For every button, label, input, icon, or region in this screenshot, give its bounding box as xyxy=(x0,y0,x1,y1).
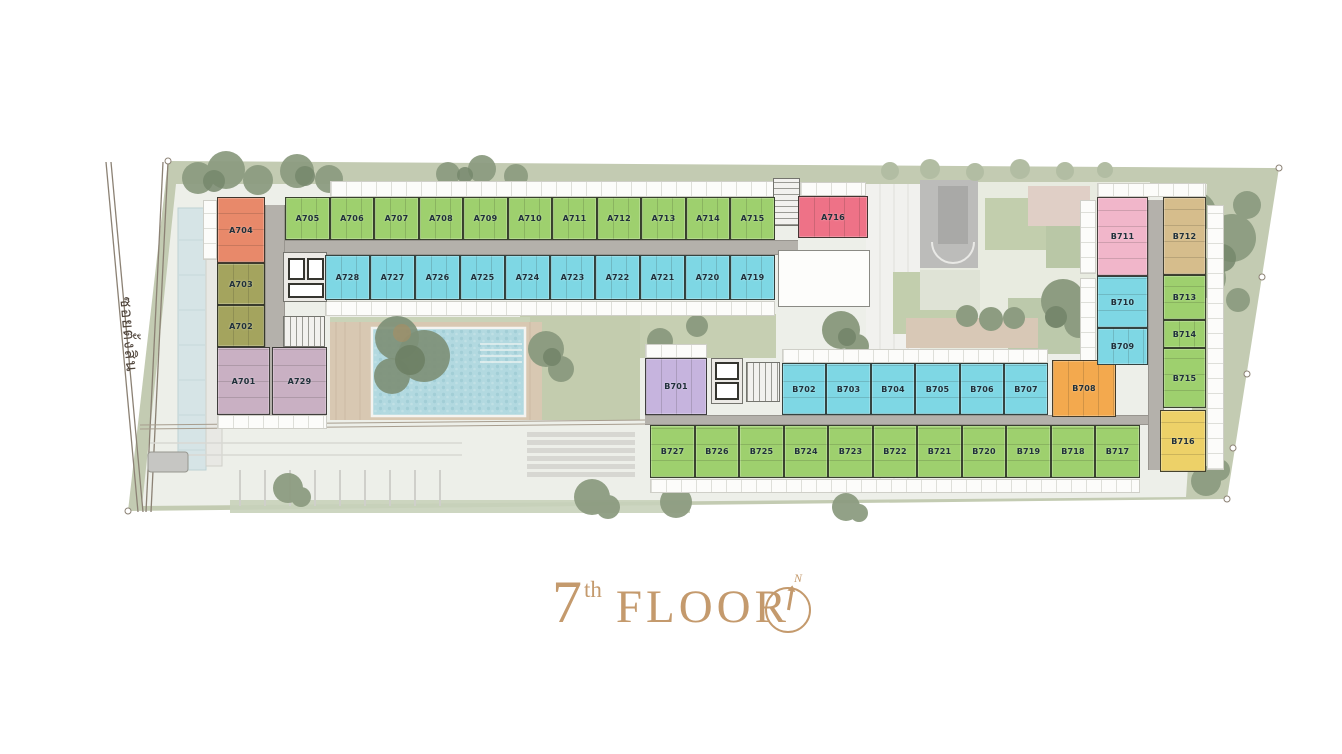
unit-b712[interactable]: B712 xyxy=(1163,197,1206,275)
unit-label: B721 xyxy=(928,447,952,456)
unit-b727[interactable]: B727 xyxy=(650,425,695,478)
building-b: B701B702B703B704B705B706B707B708B711B712… xyxy=(0,0,1342,754)
unit-label: B710 xyxy=(1111,298,1135,307)
unit-label: B719 xyxy=(1017,447,1041,456)
unit-b724[interactable]: B724 xyxy=(784,425,828,478)
unit-b713[interactable]: B713 xyxy=(1163,275,1206,320)
unit-b723[interactable]: B723 xyxy=(828,425,873,478)
unit-b710[interactable]: B710 xyxy=(1097,276,1148,328)
unit-label: B708 xyxy=(1072,384,1096,393)
unit-label: B706 xyxy=(970,385,994,394)
unit-b718[interactable]: B718 xyxy=(1051,425,1095,478)
unit-b711[interactable]: B711 xyxy=(1097,197,1148,276)
unit-b709[interactable]: B709 xyxy=(1097,328,1148,365)
unit-b726[interactable]: B726 xyxy=(695,425,739,478)
unit-label: B725 xyxy=(750,447,774,456)
unit-label: B709 xyxy=(1111,342,1135,351)
floor-ordinal: th xyxy=(584,577,602,602)
unit-label: B717 xyxy=(1106,447,1130,456)
unit-label: B720 xyxy=(972,447,996,456)
unit-label: B724 xyxy=(794,447,818,456)
unit-b705[interactable]: B705 xyxy=(915,363,960,415)
unit-label: B704 xyxy=(881,385,905,394)
unit-label: B707 xyxy=(1014,385,1038,394)
unit-b722[interactable]: B722 xyxy=(873,425,917,478)
unit-label: B705 xyxy=(926,385,950,394)
unit-label: B713 xyxy=(1173,293,1197,302)
unit-b708[interactable]: B708 xyxy=(1052,360,1116,417)
unit-b704[interactable]: B704 xyxy=(871,363,915,415)
unit-label: B711 xyxy=(1111,232,1135,241)
unit-b701[interactable]: B701 xyxy=(645,358,707,415)
unit-b721[interactable]: B721 xyxy=(917,425,962,478)
unit-b720[interactable]: B720 xyxy=(962,425,1006,478)
unit-label: B703 xyxy=(837,385,861,394)
unit-label: B722 xyxy=(883,447,907,456)
unit-b719[interactable]: B719 xyxy=(1006,425,1051,478)
unit-label: B726 xyxy=(705,447,729,456)
unit-label: B723 xyxy=(839,447,863,456)
unit-label: B701 xyxy=(664,382,688,391)
unit-label: B714 xyxy=(1173,330,1197,339)
unit-b703[interactable]: B703 xyxy=(826,363,871,415)
unit-label: B715 xyxy=(1173,374,1197,383)
unit-label: B716 xyxy=(1171,437,1195,446)
unit-label: B712 xyxy=(1173,232,1197,241)
floor-number: 7 xyxy=(552,569,582,635)
unit-label: B727 xyxy=(661,447,685,456)
unit-b717[interactable]: B717 xyxy=(1095,425,1140,478)
unit-b702[interactable]: B702 xyxy=(782,363,826,415)
unit-label: B702 xyxy=(792,385,816,394)
unit-b707[interactable]: B707 xyxy=(1004,363,1048,415)
unit-b706[interactable]: B706 xyxy=(960,363,1004,415)
unit-b725[interactable]: B725 xyxy=(739,425,784,478)
unit-b714[interactable]: B714 xyxy=(1163,320,1206,348)
floor-plan-page: A704A703A702A701A729A705A706A707A708A709… xyxy=(0,0,1342,754)
floor-title: 7thFLOOR xyxy=(552,572,790,634)
unit-b716[interactable]: B716 xyxy=(1160,410,1206,472)
unit-b715[interactable]: B715 xyxy=(1163,348,1206,408)
north-compass: N xyxy=(763,571,821,635)
unit-label: B718 xyxy=(1061,447,1085,456)
